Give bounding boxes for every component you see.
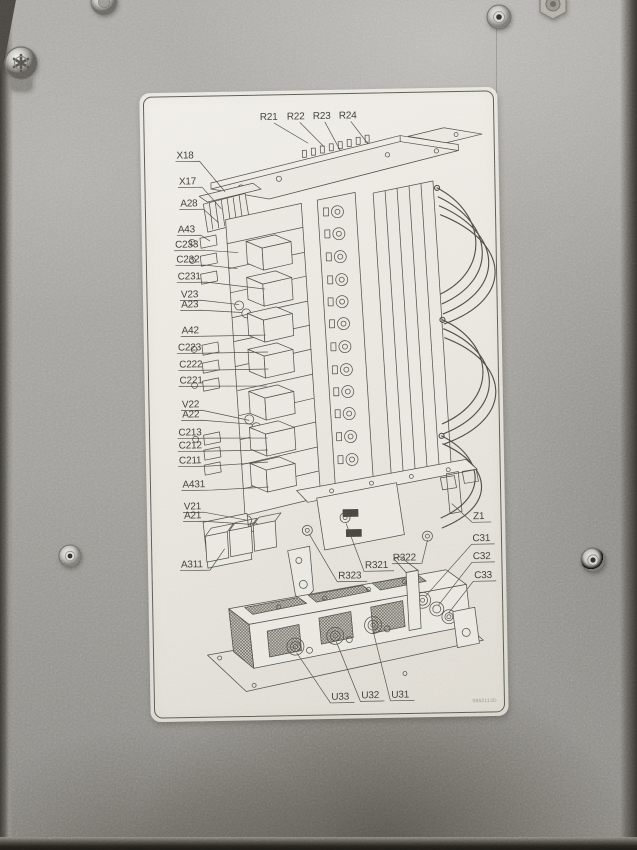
callout-C232: C232 — [176, 254, 200, 265]
callout-C211: C211 — [179, 455, 202, 466]
callout-R321: R321 — [365, 560, 389, 571]
callout-C32: C32 — [473, 551, 492, 562]
panel-edge-right — [620, 0, 637, 850]
callout-R24: R24 — [339, 110, 358, 121]
callout-R322: R322 — [393, 552, 417, 563]
callout-X17: X17 — [179, 176, 197, 187]
panel-edge-bottom — [0, 837, 637, 850]
callout-R23: R23 — [313, 111, 332, 122]
torx-screw-left — [0, 42, 50, 98]
callout-C223: C223 — [178, 342, 202, 353]
machine-line-art — [187, 127, 503, 693]
rivet-mid-left — [57, 543, 85, 571]
callout-A43: A43 — [178, 224, 196, 235]
callout-R323: R323 — [338, 570, 362, 581]
callout-C221: C221 — [179, 375, 203, 386]
callout-A22: A22 — [182, 409, 200, 420]
callout-Z1: Z1 — [473, 511, 485, 522]
callout-A23: A23 — [181, 299, 199, 310]
leader-line-R24 — [351, 121, 368, 144]
callout-C31: C31 — [472, 533, 491, 544]
solenoid-column — [317, 192, 373, 491]
valve-stack — [188, 203, 321, 533]
photo-scene: { "scene": { "description": "photograph … — [0, 0, 637, 850]
rivet-top-right — [484, 2, 516, 34]
diagram-drawing: R21R22R23R24X18X17A28A43C233C232C231V23A… — [139, 87, 508, 722]
callout-A21: A21 — [184, 510, 202, 521]
callout-A431: A431 — [182, 479, 205, 490]
callout-C213: C213 — [178, 427, 202, 438]
callout-A28: A28 — [180, 198, 198, 209]
rivet-mid-right — [579, 546, 609, 576]
part-code: 9862113D — [472, 698, 497, 704]
pan-head-screw-top-left — [86, 0, 124, 18]
callout-C33: C33 — [474, 570, 493, 581]
callout-R21: R21 — [260, 112, 279, 123]
hex-standoff-top-right — [534, 0, 572, 22]
callout-U32: U32 — [361, 690, 380, 701]
callout-C233: C233 — [175, 239, 199, 250]
fin-panel — [373, 181, 451, 477]
callout-C222: C222 — [179, 359, 203, 370]
callout-C231: C231 — [178, 271, 202, 282]
callout-X18: X18 — [176, 150, 194, 161]
leader-line-R23 — [325, 122, 341, 151]
diagram-label: R21R22R23R24X18X17A28A43C233C232C231V23A… — [139, 87, 508, 722]
callout-A311: A311 — [181, 559, 204, 570]
callout-C212: C212 — [179, 440, 203, 451]
panel-edge-left — [0, 0, 13, 850]
callout-R22: R22 — [287, 111, 306, 122]
callout-A42: A42 — [182, 325, 200, 336]
callout-U31: U31 — [391, 689, 410, 700]
leader-line-R22 — [300, 122, 324, 147]
callout-U33: U33 — [331, 692, 350, 703]
